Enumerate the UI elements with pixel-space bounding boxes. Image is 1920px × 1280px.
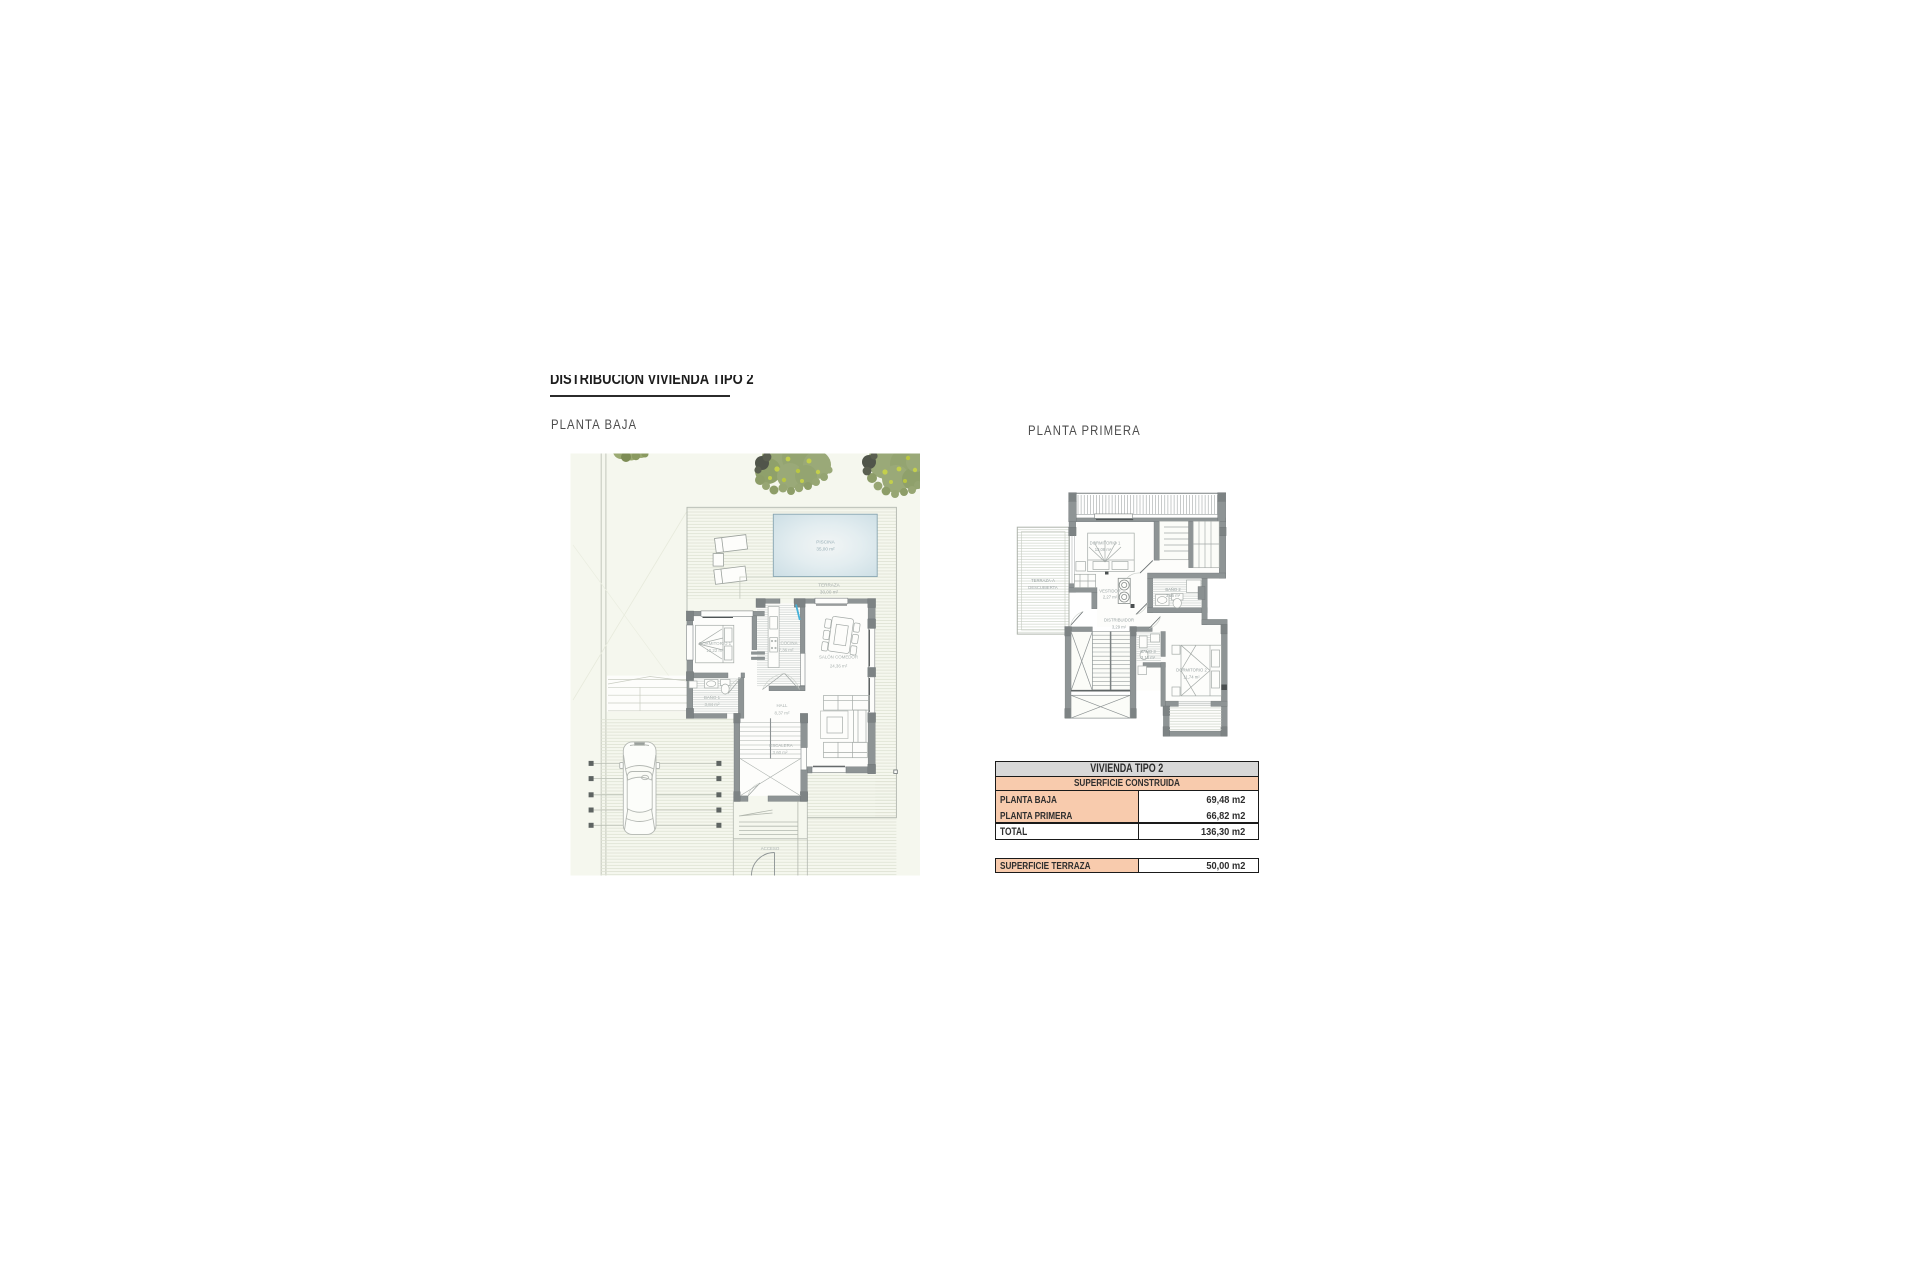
svg-text:7,36 m²: 7,36 m²	[779, 648, 794, 653]
svg-text:3,95 m²: 3,95 m²	[1166, 593, 1181, 598]
svg-text:3,29 m²: 3,29 m²	[1112, 625, 1127, 630]
svg-text:BAÑO 3: BAÑO 3	[1140, 649, 1156, 654]
svg-text:DISTRIBUIDOR: DISTRIBUIDOR	[1104, 618, 1134, 623]
svg-text:24,36 m²: 24,36 m²	[830, 664, 848, 669]
svg-text:ACCESO: ACCESO	[761, 846, 780, 851]
svg-text:3,10 m²: 3,10 m²	[1141, 655, 1156, 660]
svg-text:2,27 m²: 2,27 m²	[1103, 595, 1118, 600]
svg-text:BAÑO 1: BAÑO 1	[704, 695, 721, 700]
svg-text:DESCUBIERTA: DESCUBIERTA	[1028, 585, 1058, 590]
svg-text:3,84 m²: 3,84 m²	[705, 702, 720, 707]
svg-text:SALÓN COMEDOR: SALÓN COMEDOR	[819, 655, 858, 660]
svg-text:11,74 m²: 11,74 m²	[1183, 675, 1200, 680]
svg-text:10,22 m²: 10,22 m²	[706, 648, 724, 653]
svg-text:13,08 m²: 13,08 m²	[1095, 547, 1112, 552]
svg-text:DORMITORIO 2: DORMITORIO 2	[1176, 668, 1207, 673]
svg-text:8,37 m²: 8,37 m²	[775, 711, 790, 716]
svg-text:TERRAZA-A: TERRAZA-A	[1031, 578, 1055, 583]
svg-text:3,60 m²: 3,60 m²	[773, 750, 788, 755]
svg-text:PISCINA: PISCINA	[816, 540, 835, 545]
svg-text:35,00 m²: 35,00 m²	[816, 547, 835, 552]
svg-text:VESTIDOR: VESTIDOR	[1099, 589, 1120, 594]
svg-text:HALL: HALL	[777, 703, 789, 708]
svg-text:DORMITORIO 1: DORMITORIO 1	[699, 641, 732, 646]
svg-text:COCINA: COCINA	[780, 641, 797, 646]
svg-text:DORMITORIO 1: DORMITORIO 1	[1090, 541, 1121, 546]
svg-text:TERRAZA: TERRAZA	[818, 583, 840, 588]
svg-text:30,00 m²: 30,00 m²	[820, 590, 839, 595]
svg-text:ESCALERA: ESCALERA	[769, 743, 792, 748]
svg-text:BAÑO 2: BAÑO 2	[1165, 587, 1181, 592]
